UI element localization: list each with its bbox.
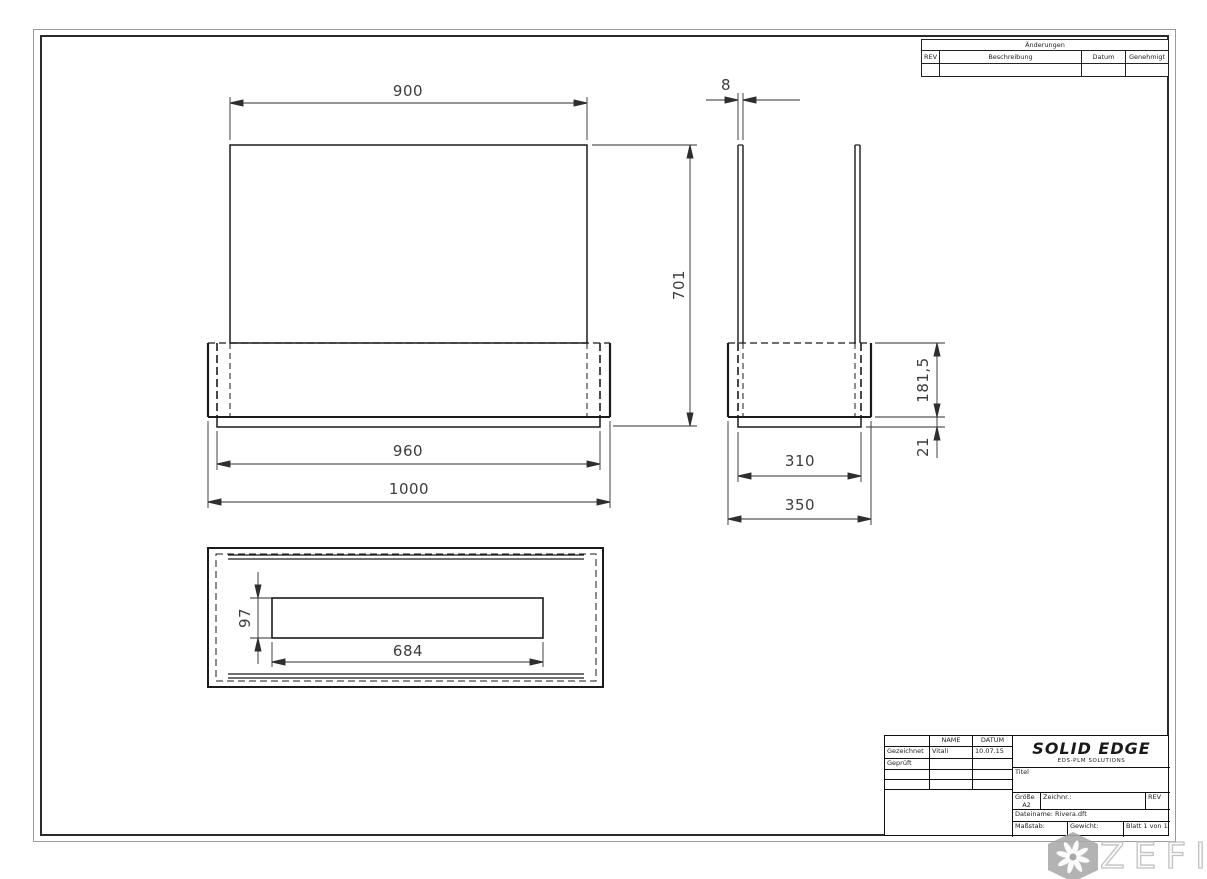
titleblock-size-cell: Größe A2 <box>1013 793 1041 810</box>
titleblock-empty-cell <box>930 780 973 790</box>
dim-side-base-height: 181,5 <box>914 357 932 402</box>
drawing-sheet: 900 701 960 1000 8 181,5 21 310 350 97 6… <box>0 0 1207 879</box>
revision-table-empty-row <box>922 64 1168 76</box>
revision-table: Änderungen REV Beschreibung Datum Genehm… <box>921 39 1169 77</box>
revision-col-approved: Genehmigt <box>1126 51 1168 64</box>
snowflake-swirl-icon <box>1043 831 1103 879</box>
titleblock-filename-cell: Dateiname: Rivera.dft <box>1013 810 1170 822</box>
dim-top-slot-depth: 97 <box>236 608 254 628</box>
titleblock-logo-cell: SOLID EDGE EDS-PLM SOLUTIONS <box>1013 736 1170 768</box>
revision-col-date: Datum <box>1082 51 1126 64</box>
revision-col-description: Beschreibung <box>940 51 1082 64</box>
solid-edge-logo: SOLID EDGE <box>1015 739 1168 758</box>
revision-empty-cell <box>940 64 1082 76</box>
revision-table-title: Änderungen <box>922 40 1168 51</box>
solid-edge-logo-subtitle: EDS-PLM SOLUTIONS <box>1015 758 1168 765</box>
titleblock-empty-cell <box>930 770 973 780</box>
title-block: NAME DATUM Gezeichnet Vitali 10.07.15 Ge… <box>884 735 1169 836</box>
titleblock-checked-label: Geprüft <box>885 759 930 770</box>
revision-table-header-row: REV Beschreibung Datum Genehmigt <box>922 51 1168 64</box>
dim-side-base-depth: 350 <box>785 496 815 514</box>
titleblock-drawn-date: 10.07.15 <box>973 747 1013 759</box>
dim-side-lip-height: 21 <box>914 437 932 457</box>
dim-front-top-width: 900 <box>393 82 423 100</box>
side-view-dimension-lines <box>706 93 945 525</box>
titleblock-empty-cell <box>973 780 1013 790</box>
dim-top-slot-length: 684 <box>393 642 423 660</box>
titleblock-blank-header <box>885 736 930 747</box>
revision-empty-cell <box>1082 64 1126 76</box>
titleblock-name-header: NAME <box>930 736 973 747</box>
revision-col-rev: REV <box>922 51 940 64</box>
watermark-text: ZEFIRE <box>1100 836 1207 877</box>
titleblock-date-header: DATUM <box>973 736 1013 747</box>
dim-front-inner-base-width: 960 <box>393 442 423 460</box>
revision-empty-cell <box>922 64 940 76</box>
dim-front-height: 701 <box>670 270 688 300</box>
dim-side-inner-base-depth: 310 <box>785 452 815 470</box>
titleblock-size-value: A2 <box>1015 802 1038 810</box>
titleblock-notes-area <box>885 790 1013 837</box>
titleblock-empty-cell <box>973 770 1013 780</box>
top-view <box>208 548 603 687</box>
titleblock-rev-cell: REV <box>1146 793 1170 810</box>
titleblock-title-label: Titel <box>1015 768 1029 776</box>
titleblock-drawn-name: Vitali <box>930 747 973 759</box>
front-view <box>208 145 610 427</box>
titleblock-drawn-label: Gezeichnet <box>885 747 930 759</box>
side-view <box>728 145 871 427</box>
titleblock-checked-date <box>973 759 1013 770</box>
titleblock-title-cell: Titel <box>1013 768 1170 793</box>
titleblock-sheet-cell: Blatt 1 von 1 <box>1124 822 1170 837</box>
titleblock-empty-cell <box>885 780 930 790</box>
dim-side-wall-thickness: 8 <box>721 76 731 94</box>
titleblock-drawingno-cell: Zeichnr.: <box>1041 793 1146 810</box>
dim-front-base-width: 1000 <box>389 480 429 498</box>
titleblock-empty-cell <box>885 770 930 780</box>
revision-empty-cell <box>1126 64 1168 76</box>
titleblock-checked-name <box>930 759 973 770</box>
front-view-dimension-lines <box>208 97 697 508</box>
